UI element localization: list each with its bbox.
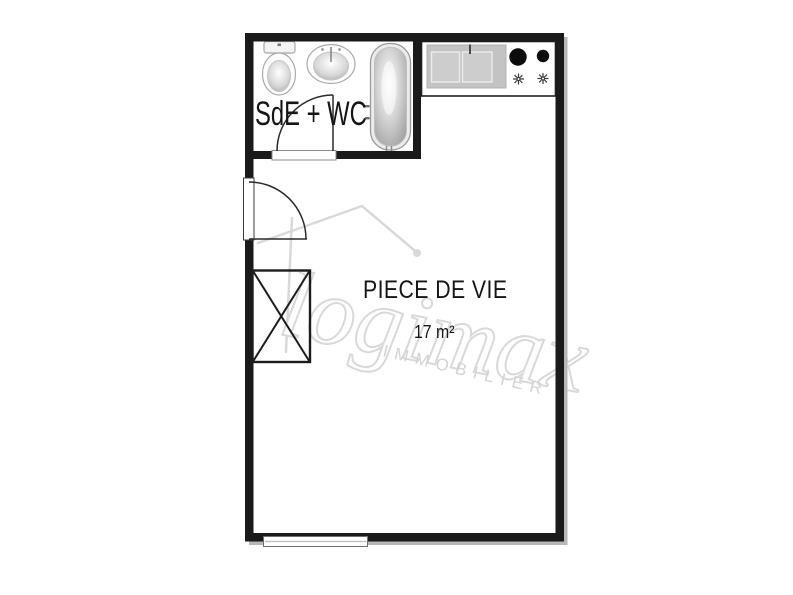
window-icon (264, 537, 368, 547)
toilet-icon (263, 42, 296, 96)
wall-bathroom-right (413, 33, 421, 159)
burner-small-icon (537, 50, 549, 62)
bathtub-icon (365, 44, 411, 154)
burner-large-icon (509, 48, 526, 65)
entrance-door-icon (249, 182, 307, 239)
closet-icon (253, 271, 311, 363)
living-room-label: PIECE DE VIE (363, 276, 507, 305)
bathroom-label: SdE + WC (255, 95, 367, 134)
wall-top (245, 33, 564, 42)
kitchen-sink-basin-left-icon (432, 52, 460, 82)
washbasin-icon (307, 45, 355, 84)
living-room-area: 17 m² (414, 322, 454, 343)
floor-plan: logimax IMMOBILIER (0, 0, 793, 595)
kitchen-counter (422, 42, 556, 97)
bathroom-door-threshold (272, 151, 336, 161)
entrance-door-threshold (244, 178, 255, 240)
wall-right (556, 33, 565, 542)
kitchen-sink-basin-right-icon (463, 52, 493, 82)
